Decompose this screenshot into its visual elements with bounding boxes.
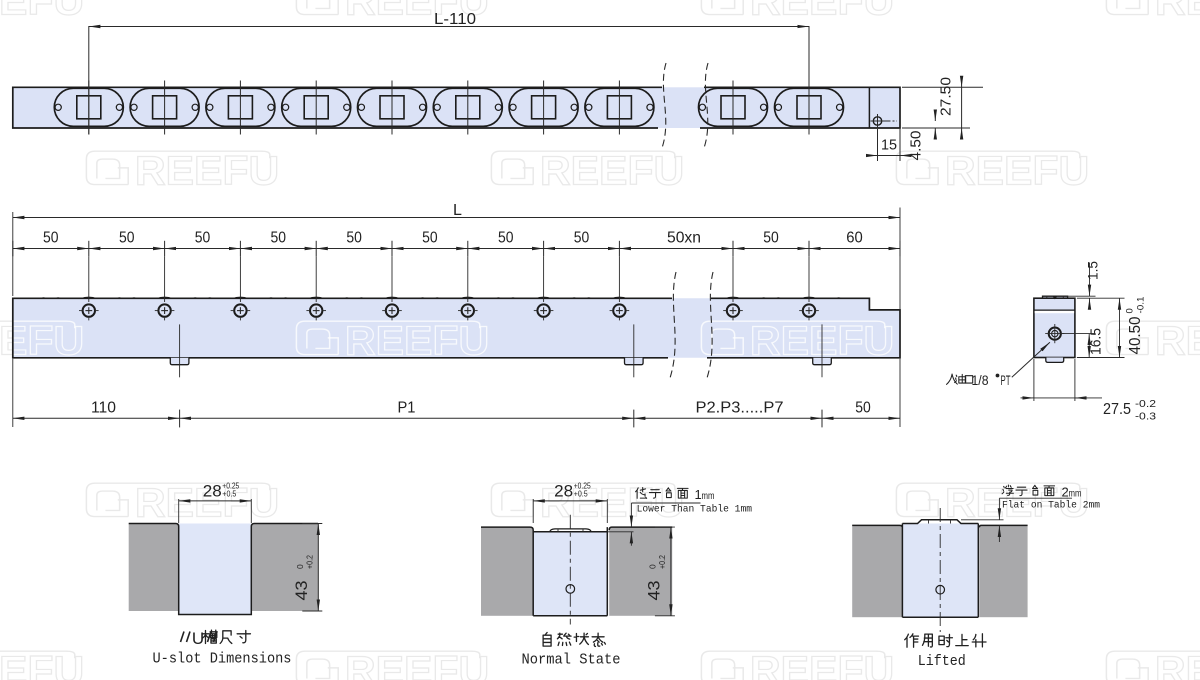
svg-text:+0.2: +0.2 (657, 555, 667, 569)
svg-text:mm: mm (1069, 489, 1082, 500)
svg-text:mm: mm (702, 491, 715, 502)
svg-text:0: 0 (295, 564, 305, 569)
svg-text:28: 28 (554, 482, 573, 501)
svg-text:50: 50 (574, 229, 590, 246)
svg-text:0: 0 (1125, 308, 1136, 313)
svg-text:Lower Than Table 1mm: Lower Than Table 1mm (637, 504, 752, 516)
svg-text:PT: PT (1001, 373, 1011, 388)
svg-text:50: 50 (422, 229, 438, 246)
svg-text:0: 0 (647, 564, 657, 569)
svg-text:27.50: 27.50 (937, 77, 954, 116)
svg-text:P1: P1 (398, 400, 416, 417)
svg-text:15: 15 (881, 137, 897, 154)
svg-text:43: 43 (292, 581, 311, 601)
svg-text:50: 50 (195, 229, 211, 246)
svg-text:L: L (453, 202, 462, 219)
svg-text:43: 43 (644, 581, 663, 601)
svg-text:50: 50 (855, 400, 871, 417)
svg-text:110: 110 (91, 400, 116, 417)
svg-text:50: 50 (763, 229, 779, 246)
svg-text:+0.5: +0.5 (574, 489, 588, 499)
svg-text:27.5: 27.5 (1103, 401, 1131, 418)
svg-text:-0.3: -0.3 (1135, 411, 1156, 423)
svg-text:40.50: 40.50 (1127, 316, 1144, 354)
svg-text:-0.1: -0.1 (1136, 297, 1147, 314)
svg-text:60: 60 (846, 229, 863, 246)
svg-text:Flat on Table 2mm: Flat on Table 2mm (1002, 500, 1100, 512)
svg-text:50: 50 (271, 229, 287, 246)
svg-text:28: 28 (203, 482, 222, 501)
svg-text:50: 50 (498, 229, 514, 246)
svg-text:1.5: 1.5 (1085, 261, 1101, 280)
svg-text:Normal State: Normal State (522, 653, 621, 669)
svg-text:U-slot Dimensions: U-slot Dimensions (153, 652, 292, 668)
svg-text:+0.5: +0.5 (222, 489, 236, 499)
svg-text:50: 50 (43, 229, 59, 246)
svg-text:Lifted: Lifted (918, 654, 966, 670)
svg-text:+0.2: +0.2 (304, 555, 314, 569)
svg-text:1/8: 1/8 (972, 373, 989, 388)
svg-text:50xn: 50xn (667, 229, 701, 246)
svg-text:-0.2: -0.2 (1135, 398, 1156, 410)
svg-text:50: 50 (119, 229, 135, 246)
svg-text:P2.P3.....P7: P2.P3.....P7 (696, 400, 784, 417)
svg-text:50: 50 (346, 229, 362, 246)
svg-text:16.5: 16.5 (1089, 328, 1105, 355)
svg-text:L-110: L-110 (434, 11, 476, 28)
